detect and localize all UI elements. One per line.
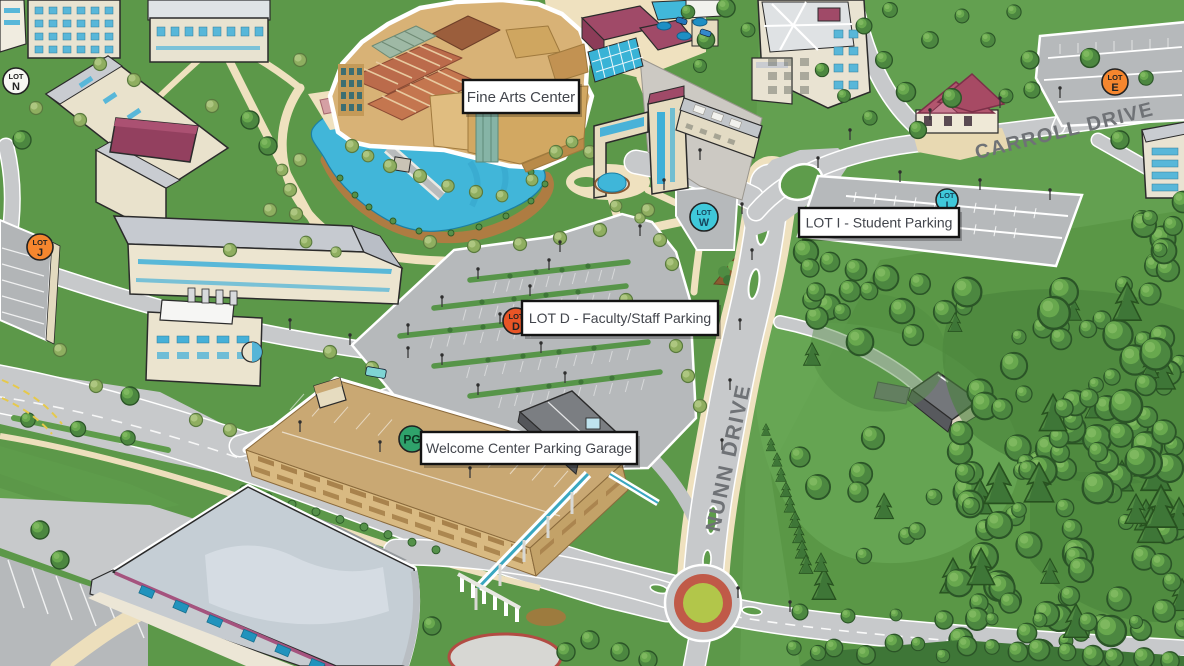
svg-text:Fine Arts Center: Fine Arts Center xyxy=(467,89,575,106)
svg-text:Welcome Center Parking Garage: Welcome Center Parking Garage xyxy=(426,440,632,456)
svg-text:W: W xyxy=(699,217,710,229)
svg-text:LOT I - Student Parking: LOT I - Student Parking xyxy=(806,215,953,231)
svg-text:PG: PG xyxy=(403,433,420,447)
svg-text:LOT: LOT xyxy=(1108,73,1123,82)
svg-text:LOT D - Faculty/Staff Parking: LOT D - Faculty/Staff Parking xyxy=(529,310,711,326)
svg-text:LOT: LOT xyxy=(9,72,24,81)
svg-text:N: N xyxy=(12,81,20,93)
svg-text:J: J xyxy=(37,247,43,259)
svg-text:D: D xyxy=(512,321,520,333)
svg-text:LOT: LOT xyxy=(697,208,712,217)
svg-text:LOT: LOT xyxy=(33,238,48,247)
svg-text:LOT: LOT xyxy=(940,191,955,200)
svg-text:E: E xyxy=(1111,82,1118,94)
